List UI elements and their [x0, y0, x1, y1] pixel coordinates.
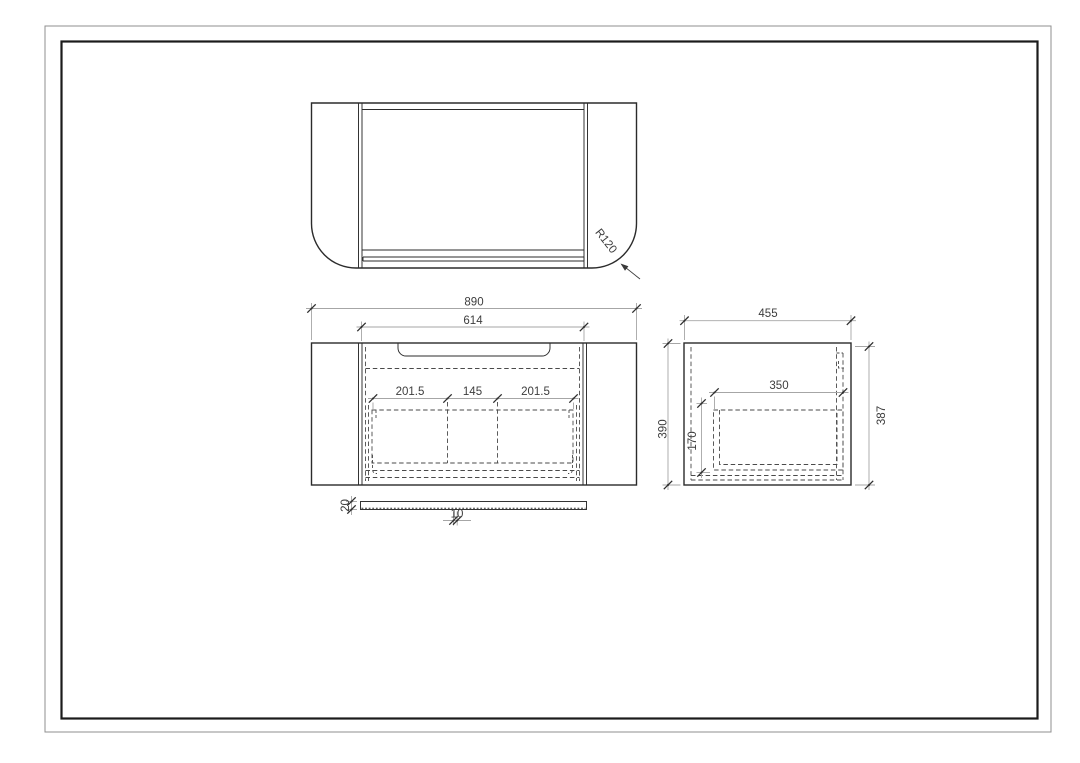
- drawer-profile-inner: [720, 410, 838, 465]
- drawing-canvas: R120: [0, 0, 1080, 763]
- dim-height-left: 390: [658, 419, 670, 438]
- dim-drawer-depth: 350: [769, 380, 788, 392]
- dim-segment-left: 201.5: [396, 386, 425, 398]
- page-border-inner: [62, 42, 1038, 719]
- dim-drawer-height: 170: [687, 431, 699, 450]
- drawer-profile-outer: [714, 410, 844, 470]
- dim-corner-radius: R120: [592, 227, 618, 256]
- dimension-annotations: 890 614 201.5 145 201.5 455 350 390 387 …: [306, 297, 888, 526]
- side-view: [684, 343, 851, 485]
- trim-strip: [361, 502, 587, 510]
- dim-height-right: 387: [876, 406, 888, 425]
- page-border-outer: [45, 26, 1051, 732]
- dim-segment-center: 145: [463, 386, 482, 398]
- handle-recess: [398, 343, 550, 356]
- top-view: R120: [312, 103, 641, 279]
- side-view-outline: [684, 343, 851, 485]
- front-view: [312, 343, 637, 485]
- dim-overall-width: 890: [464, 297, 483, 309]
- dim-segment-right: 201.5: [521, 386, 550, 398]
- front-view-outline: [312, 343, 637, 485]
- dim-strip-offset: 10: [451, 509, 464, 521]
- dim-inner-width: 614: [463, 315, 483, 327]
- dim-strip-thickness: 20: [340, 499, 352, 512]
- dim-depth: 455: [758, 308, 777, 320]
- radius-leader-arrow: [621, 264, 629, 271]
- drawer-box-hidden: [372, 410, 573, 463]
